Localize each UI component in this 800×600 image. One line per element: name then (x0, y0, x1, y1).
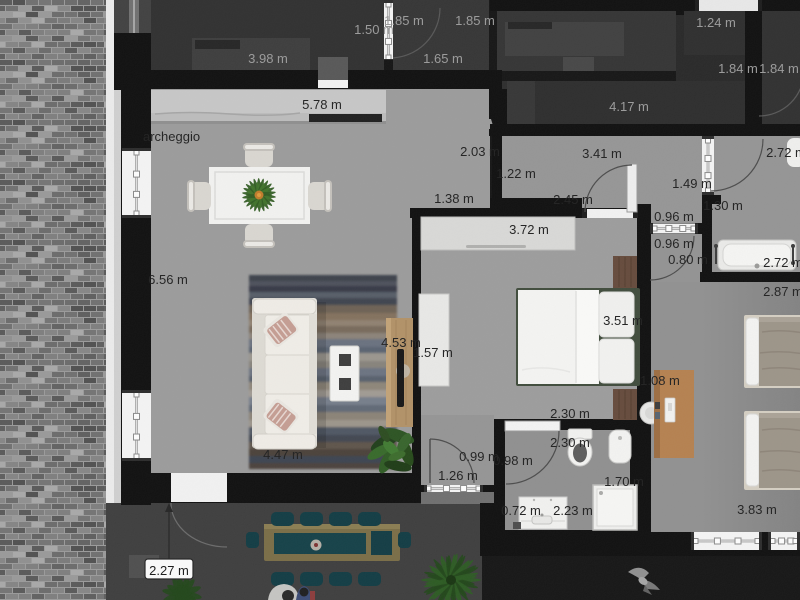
svg-text:2.27 m: 2.27 m (149, 563, 189, 578)
